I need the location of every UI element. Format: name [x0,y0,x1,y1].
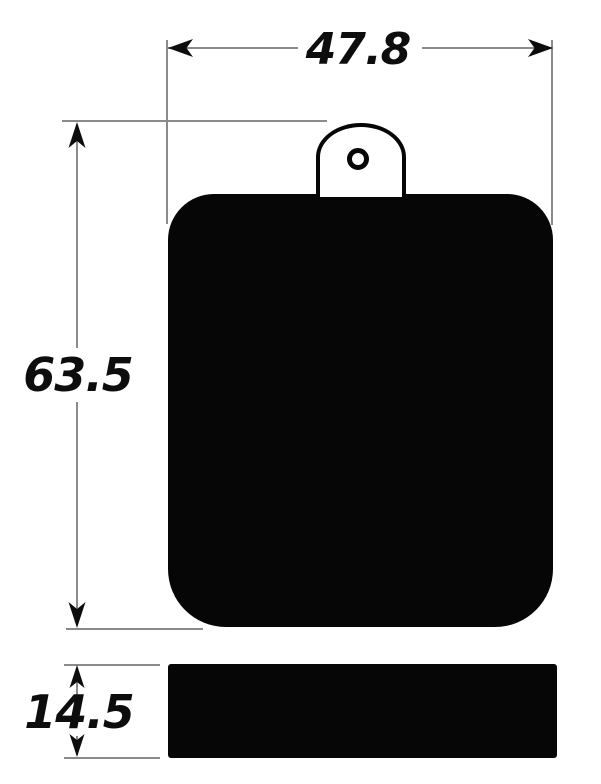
width-dimension-label: 47.8 [306,28,411,72]
height-dimension-line-upper [76,126,78,348]
width-dimension-line-right [422,47,552,49]
thickness-dimension-label: 14.5 [24,689,134,735]
width-extension-line-right [551,40,553,225]
width-extension-line-left [166,40,168,224]
height-dimension-label: 63.5 [23,352,133,398]
pad-side-view [168,664,557,758]
technical-drawing-canvas: 47.8 63.5 14.5 [0,0,601,784]
tab-hole [347,148,369,170]
pad-front-view [168,194,553,627]
height-extension-line-top [62,120,327,122]
height-dimension-line-lower [76,402,78,622]
height-extension-line-bottom [66,628,203,630]
thickness-extension-line-top [64,664,160,666]
thickness-extension-line-bottom [64,757,160,759]
width-dimension-line-left [168,47,298,49]
